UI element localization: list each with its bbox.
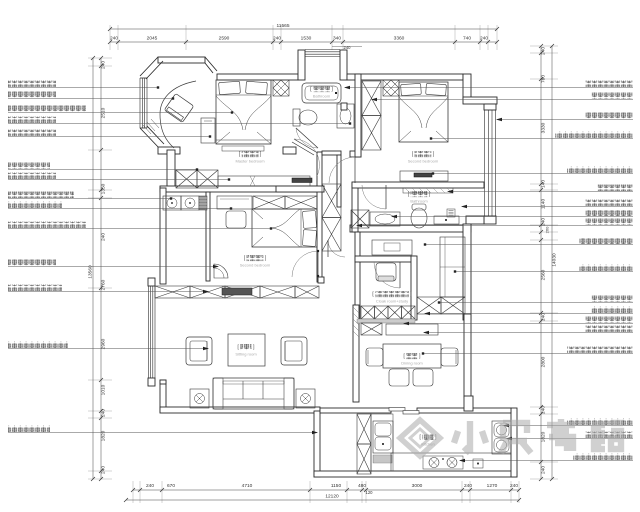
svg-text:12120: 12120 — [325, 494, 339, 500]
svg-text:1820: 1820 — [541, 431, 547, 442]
svg-text:Bathroom: Bathroom — [410, 199, 428, 204]
svg-text:[: [ — [237, 345, 239, 351]
svg-text:780: 780 — [541, 75, 547, 83]
svg-text:]: ] — [433, 152, 435, 158]
svg-text:Second bedroom: Second bedroom — [408, 159, 439, 164]
svg-text:[: [ — [239, 152, 241, 158]
svg-text:2560: 2560 — [541, 269, 547, 280]
svg-text:240: 240 — [464, 483, 472, 489]
svg-text:240: 240 — [541, 313, 547, 321]
svg-text:[: [ — [372, 292, 374, 298]
svg-text:2760: 2760 — [101, 279, 107, 290]
svg-text:1530: 1530 — [301, 36, 312, 42]
svg-text:Master bedroom: Master bedroom — [235, 159, 265, 164]
svg-text:1150: 1150 — [331, 483, 342, 489]
svg-text:3000: 3000 — [412, 483, 423, 489]
svg-text:1010: 1010 — [101, 384, 107, 395]
svg-text:240: 240 — [273, 36, 281, 42]
svg-text:Cloak room+study: Cloak room+study — [376, 299, 408, 304]
svg-text:Sitting room: Sitting room — [235, 352, 257, 357]
svg-text:240: 240 — [101, 61, 107, 69]
svg-text:1140: 1140 — [541, 199, 547, 210]
svg-text:480: 480 — [358, 483, 366, 489]
svg-text:120: 120 — [366, 490, 374, 495]
svg-text:Bathroom: Bathroom — [313, 94, 331, 99]
svg-text:240: 240 — [110, 36, 118, 42]
svg-text:240: 240 — [541, 466, 547, 474]
svg-text:3330: 3330 — [541, 122, 547, 133]
svg-text:240: 240 — [146, 483, 154, 489]
svg-text:]: ] — [260, 152, 262, 158]
svg-text:740: 740 — [463, 36, 471, 42]
svg-text:240: 240 — [541, 218, 547, 226]
svg-text:]: ] — [253, 345, 255, 351]
svg-text:3360: 3360 — [394, 36, 405, 42]
svg-text:13560: 13560 — [88, 265, 94, 279]
svg-text:240: 240 — [344, 45, 352, 50]
svg-text:[: [ — [403, 354, 405, 360]
svg-text:240: 240 — [101, 409, 107, 417]
svg-text:240: 240 — [541, 47, 547, 55]
svg-text:[: [ — [419, 435, 421, 441]
svg-text:2510: 2510 — [101, 107, 107, 118]
svg-text:2800: 2800 — [541, 356, 547, 367]
svg-text:340: 340 — [333, 36, 341, 42]
svg-text:240: 240 — [480, 36, 488, 42]
svg-text:670: 670 — [167, 483, 175, 489]
svg-text:11565: 11565 — [277, 23, 290, 29]
svg-text:1270: 1270 — [487, 483, 498, 489]
svg-text:1820: 1820 — [101, 430, 107, 441]
svg-text:2590: 2590 — [219, 36, 230, 42]
svg-text:2045: 2045 — [147, 36, 158, 42]
svg-text:Second bedroom: Second bedroom — [240, 263, 271, 268]
svg-text:1350: 1350 — [101, 183, 107, 194]
svg-text:240: 240 — [101, 233, 107, 241]
svg-text:240: 240 — [510, 483, 518, 489]
svg-text:[: [ — [244, 256, 246, 262]
svg-text:Dining room: Dining room — [401, 361, 423, 366]
svg-text:4710: 4710 — [242, 483, 253, 489]
svg-text:]: ] — [419, 354, 421, 360]
svg-text:]: ] — [265, 256, 267, 262]
svg-text:240: 240 — [541, 406, 547, 414]
svg-text:2960: 2960 — [101, 338, 107, 349]
svg-text:]: ] — [331, 87, 333, 93]
svg-text:260: 260 — [545, 226, 550, 233]
svg-text:240: 240 — [101, 466, 107, 474]
svg-text:14030: 14030 — [552, 253, 558, 267]
svg-text:[: [ — [310, 87, 312, 93]
svg-text:[: [ — [412, 152, 414, 158]
svg-text:140: 140 — [541, 180, 547, 188]
